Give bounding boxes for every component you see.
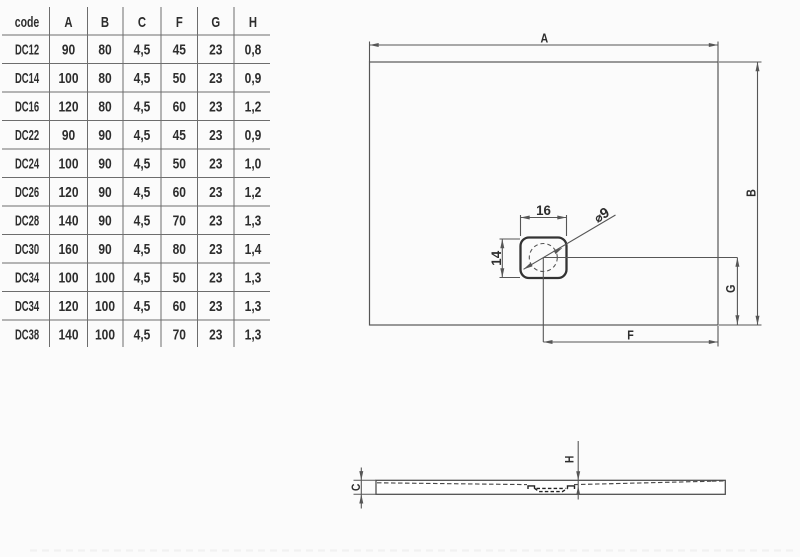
svg-text:50: 50 [173,269,186,286]
svg-text:4,5: 4,5 [134,298,151,315]
svg-text:70: 70 [173,326,186,343]
svg-text:23: 23 [209,184,223,201]
svg-text:4,5: 4,5 [134,269,151,286]
svg-text:23: 23 [209,212,223,229]
svg-text:A: A [64,13,73,30]
svg-text:G: G [211,13,220,30]
svg-text:120: 120 [58,184,78,201]
svg-text:90: 90 [98,241,111,258]
svg-text:23: 23 [209,127,223,144]
svg-text:120: 120 [58,98,78,115]
svg-text:1,2: 1,2 [245,184,262,201]
svg-text:4,5: 4,5 [134,184,151,201]
svg-text:100: 100 [95,298,115,315]
svg-text:60: 60 [173,298,186,315]
svg-text:70: 70 [173,212,186,229]
svg-text:23: 23 [209,155,223,172]
svg-text:C: C [350,484,363,491]
svg-text:0,9: 0,9 [245,70,262,87]
svg-text:4,5: 4,5 [134,241,151,258]
svg-text:100: 100 [58,155,78,172]
svg-text:DC28: DC28 [15,213,39,230]
svg-text:H: H [564,456,577,463]
svg-text:140: 140 [58,212,78,229]
svg-text:DC38: DC38 [15,327,39,344]
svg-text:4,5: 4,5 [134,127,151,144]
svg-text:45: 45 [173,41,187,58]
svg-text:120: 120 [58,298,78,315]
svg-text:23: 23 [209,98,223,115]
svg-text:H: H [249,13,257,30]
svg-text:DC12: DC12 [15,42,39,59]
svg-text:1,3: 1,3 [245,269,262,286]
svg-text:140: 140 [58,326,78,343]
svg-text:4,5: 4,5 [134,98,151,115]
svg-text:1,3: 1,3 [245,298,262,315]
svg-text:80: 80 [173,241,186,258]
svg-text:23: 23 [209,70,223,87]
svg-text:DC24: DC24 [15,156,39,173]
svg-text:DC26: DC26 [15,184,39,201]
svg-text:code: code [15,13,39,30]
svg-text:23: 23 [209,241,223,258]
svg-text:4,5: 4,5 [134,212,151,229]
svg-text:0,9: 0,9 [245,127,262,144]
svg-text:DC34: DC34 [15,298,39,315]
svg-text:16: 16 [536,203,551,218]
svg-text:4,5: 4,5 [134,326,151,343]
svg-text:90: 90 [62,41,75,58]
svg-text:100: 100 [95,326,115,343]
svg-text:4,5: 4,5 [134,70,151,87]
svg-text:100: 100 [95,269,115,286]
svg-text:23: 23 [209,298,223,315]
svg-text:100: 100 [58,70,78,87]
svg-text:DC30: DC30 [15,241,39,258]
svg-text:B: B [743,189,758,197]
svg-text:80: 80 [98,70,111,87]
svg-text:1,3: 1,3 [245,326,262,343]
svg-text:4,5: 4,5 [134,155,151,172]
svg-text:0,8: 0,8 [245,41,262,58]
svg-text:B: B [101,13,109,30]
svg-text:DC34: DC34 [15,270,39,287]
svg-text:DC14: DC14 [15,70,39,87]
svg-text:A: A [540,31,548,46]
svg-text:90: 90 [62,127,75,144]
svg-text:90: 90 [98,127,111,144]
svg-text:1,0: 1,0 [245,155,262,172]
svg-text:1,2: 1,2 [245,98,262,115]
svg-text:90: 90 [98,212,111,229]
svg-text:F: F [176,13,183,30]
svg-text:4,5: 4,5 [134,41,151,58]
svg-text:45: 45 [173,127,187,144]
svg-text:DC16: DC16 [15,99,39,116]
svg-text:1,3: 1,3 [245,212,262,229]
svg-text:G: G [723,285,738,293]
svg-text:50: 50 [173,70,186,87]
svg-text:F: F [627,327,634,342]
svg-text:1,4: 1,4 [245,241,262,258]
svg-text:80: 80 [98,98,111,115]
svg-text:23: 23 [209,41,223,58]
svg-text:160: 160 [58,241,78,258]
svg-text:C: C [138,13,147,30]
svg-text:23: 23 [209,326,223,343]
svg-text:100: 100 [58,269,78,286]
svg-text:50: 50 [173,155,186,172]
svg-text:23: 23 [209,269,223,286]
svg-text:90: 90 [98,184,111,201]
svg-text:60: 60 [173,98,186,115]
svg-text:90: 90 [98,155,111,172]
svg-text:80: 80 [98,41,111,58]
svg-text:60: 60 [173,184,186,201]
svg-text:DC22: DC22 [15,127,39,144]
svg-text:14: 14 [489,251,504,266]
